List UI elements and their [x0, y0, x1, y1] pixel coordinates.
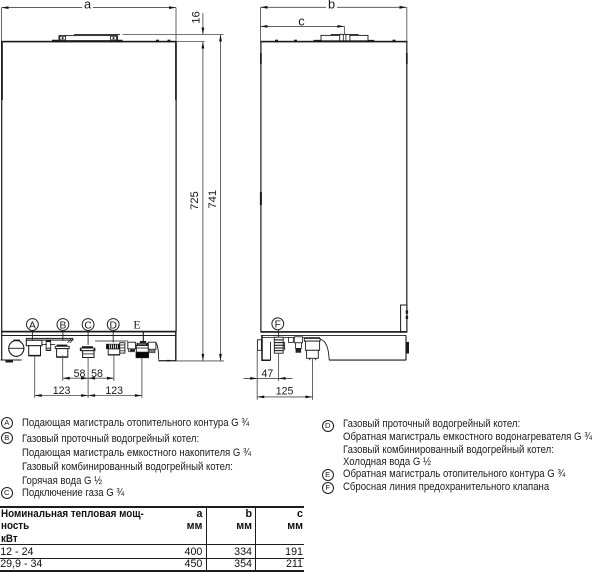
svg-text:b: b — [328, 0, 335, 11]
svg-text:C: C — [84, 320, 92, 331]
svg-text:58: 58 — [74, 368, 86, 380]
svg-text:16: 16 — [190, 11, 202, 24]
svg-text:123: 123 — [53, 385, 71, 397]
svg-text:47: 47 — [262, 368, 274, 380]
svg-text:a: a — [84, 0, 92, 11]
svg-text:B: B — [59, 320, 66, 331]
svg-text:58: 58 — [91, 368, 103, 380]
svg-text:F: F — [275, 320, 281, 331]
svg-text:c: c — [298, 14, 305, 29]
svg-text:D: D — [109, 320, 116, 331]
svg-text:123: 123 — [105, 385, 123, 397]
svg-text:E: E — [133, 317, 140, 331]
svg-text:125: 125 — [276, 386, 294, 398]
svg-text:725: 725 — [189, 191, 201, 210]
svg-text:741: 741 — [207, 190, 219, 209]
svg-text:A: A — [29, 320, 36, 331]
